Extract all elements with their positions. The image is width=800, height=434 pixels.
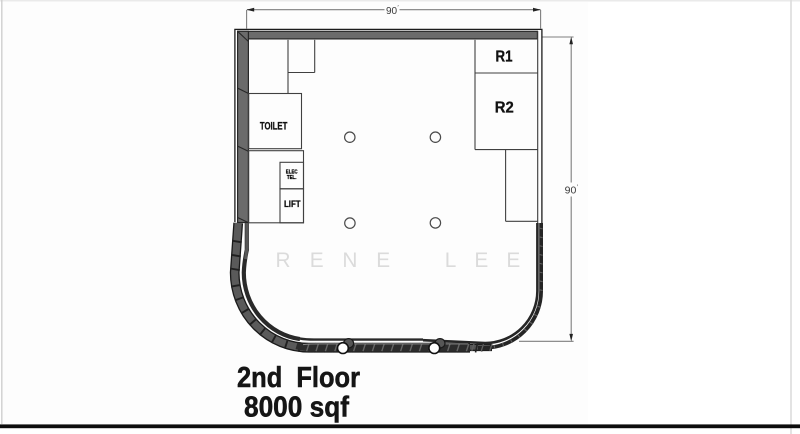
svg-text:R1: R1 [496, 48, 513, 65]
svg-text:TOILET: TOILET [260, 120, 288, 132]
svg-text:8000 sqf: 8000 sqf [244, 392, 349, 424]
svg-text:TEL.: TEL. [287, 175, 297, 181]
svg-text:R: R [275, 249, 290, 272]
svg-text:90: 90 [565, 185, 577, 197]
svg-text:LIFT: LIFT [284, 199, 301, 209]
svg-text:90: 90 [386, 6, 398, 17]
svg-text:R2: R2 [495, 99, 514, 116]
svg-text:2nd Floor: 2nd Floor [237, 362, 360, 394]
svg-text:L: L [445, 249, 457, 272]
svg-text:N: N [342, 249, 357, 272]
svg-text:E: E [310, 249, 324, 272]
svg-text:E: E [506, 249, 520, 272]
svg-text:E: E [474, 249, 488, 272]
svg-text:E: E [376, 249, 390, 272]
